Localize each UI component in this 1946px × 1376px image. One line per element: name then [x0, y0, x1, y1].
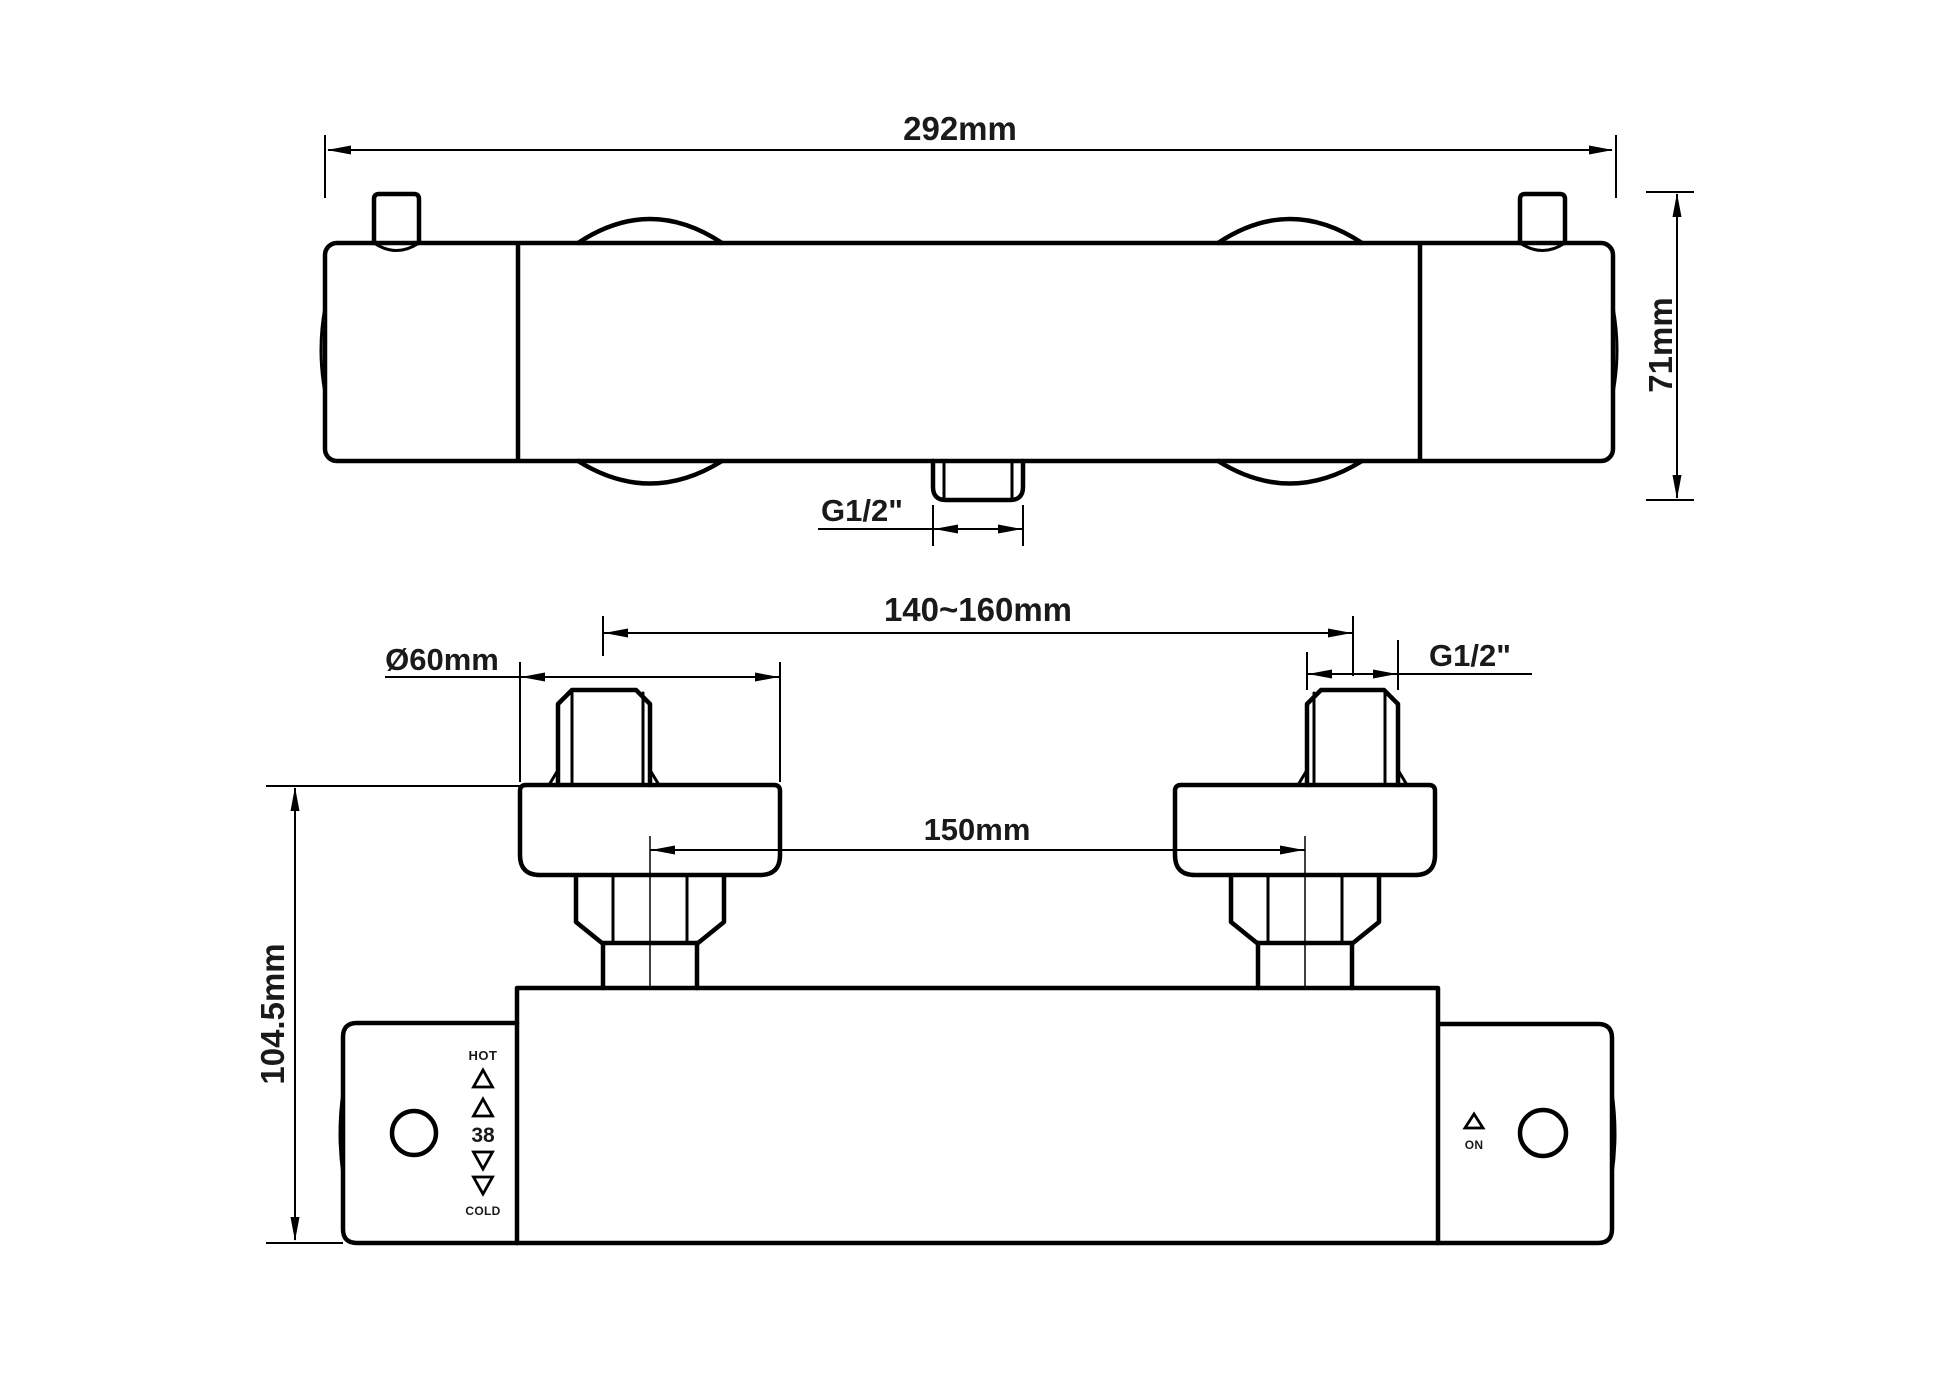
down-triangle-icon — [474, 1177, 493, 1194]
right-handle-dome — [1218, 219, 1362, 243]
arrow-left-icon — [651, 846, 675, 855]
outlet-thread-label: G1/2" — [821, 493, 903, 528]
right-inlet-stub-top-view — [1520, 194, 1565, 243]
arrow-right-icon — [998, 525, 1022, 534]
dim-valve-inlet-span: 150mm — [650, 812, 1305, 855]
up-triangle-icon — [474, 1099, 493, 1116]
front-view: HOT 38 COLD ON 140~160mm — [254, 591, 1615, 1243]
dim-top-width: 292mm — [325, 110, 1616, 198]
on-label: ON — [1465, 1138, 1484, 1152]
dim-inlet-thread: G1/2" — [1307, 638, 1532, 690]
temperature-handle: HOT 38 COLD — [340, 1023, 517, 1243]
arrow-down-icon — [1673, 475, 1682, 499]
dim-escutcheon-diameter: Ø60mm — [385, 642, 780, 782]
dim-wall-inlet-span: 140~160mm — [603, 591, 1353, 676]
down-triangle-icon — [474, 1152, 493, 1169]
top-width-label: 292mm — [903, 110, 1017, 147]
arrow-right-icon — [1373, 670, 1397, 679]
right-wall-stub — [1298, 690, 1407, 785]
arrow-right-icon — [1589, 146, 1613, 155]
flow-knob — [1520, 1110, 1566, 1156]
left-handle-dome — [578, 219, 722, 243]
flow-handle: ON — [1438, 1024, 1615, 1243]
arrow-right-icon — [1280, 846, 1304, 855]
left-wall-stub — [549, 690, 659, 785]
escutcheon-diameter-label: Ø60mm — [385, 642, 499, 677]
up-triangle-icon — [1465, 1114, 1483, 1128]
arrow-right-icon — [755, 673, 779, 682]
arrow-up-icon — [1673, 193, 1682, 217]
arrow-left-icon — [521, 673, 545, 682]
arrow-left-icon — [604, 629, 628, 638]
arrow-left-icon — [1308, 670, 1332, 679]
up-triangle-icon — [474, 1070, 493, 1087]
left-handle-grip-arc — [578, 461, 722, 484]
front-height-label: 104.5mm — [254, 943, 291, 1084]
arrow-left-icon — [327, 146, 351, 155]
valve-body-front-outline — [517, 988, 1438, 1243]
valve-inlet-span-label: 150mm — [924, 812, 1031, 847]
arrow-down-icon — [291, 1217, 300, 1241]
temperature-knob — [392, 1111, 436, 1155]
arrow-up-icon — [291, 787, 300, 811]
wall-inlet-span-label: 140~160mm — [884, 591, 1072, 628]
inlet-thread-label: G1/2" — [1429, 638, 1511, 673]
dim-front-height: 104.5mm — [254, 786, 520, 1243]
shower-outlet-stub — [933, 461, 1023, 500]
dim-top-height: 71mm — [1642, 192, 1694, 500]
technical-drawing-canvas: 292mm 71mm G1/2" — [0, 0, 1946, 1376]
right-handle-grip-arc — [1218, 461, 1362, 484]
left-inlet-stub-top-view — [374, 194, 419, 243]
top-view: 292mm 71mm G1/2" — [321, 110, 1694, 546]
hot-label: HOT — [469, 1048, 498, 1063]
temperature-38-label: 38 — [471, 1124, 495, 1147]
top-height-label: 71mm — [1642, 297, 1679, 392]
drawing-sheet: 292mm 71mm G1/2" — [0, 0, 1946, 1376]
cold-label: COLD — [465, 1204, 500, 1218]
arrow-right-icon — [1328, 629, 1352, 638]
arrow-left-icon — [934, 525, 958, 534]
